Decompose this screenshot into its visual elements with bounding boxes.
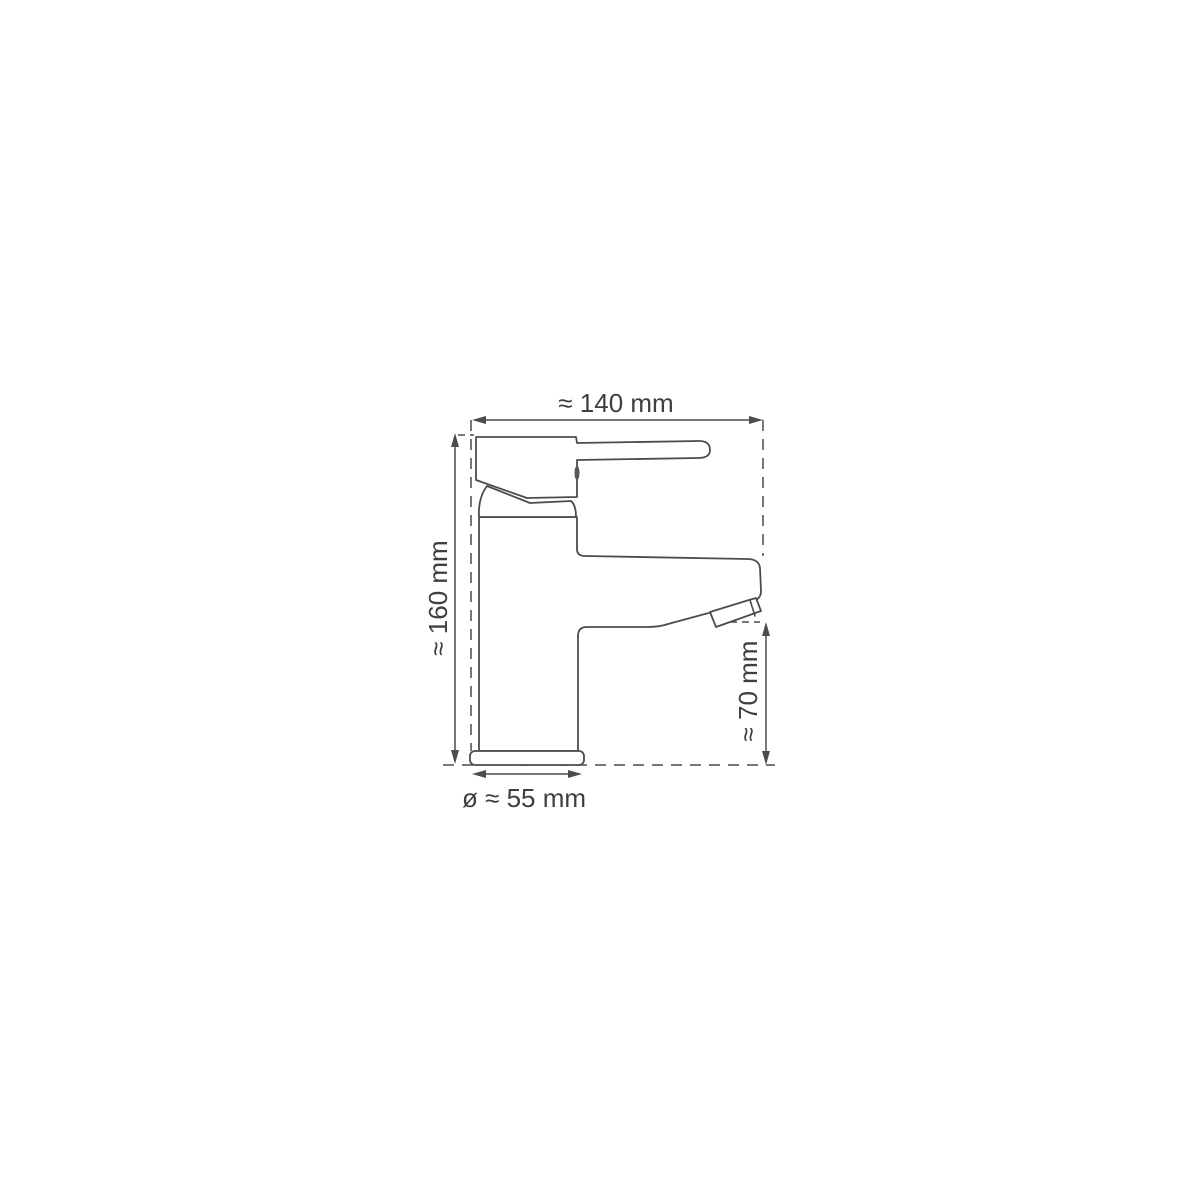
dim-spout-height-label: ≈ 70 mm — [733, 641, 763, 742]
faucet-body-and-spout — [479, 517, 761, 751]
dim-diameter-arrow-left — [472, 770, 486, 778]
dim-diameter-label: ø ≈ 55 mm — [462, 783, 586, 813]
faucet-outline — [470, 437, 761, 765]
dim-width-arrow-right — [749, 416, 763, 424]
faucet-handle-lever — [476, 437, 710, 498]
dimension-overall-height: ≈ 160 mm — [423, 433, 459, 764]
faucet-dimension-drawing: ≈ 140 mm ≈ 160 mm ≈ 70 mm ø ≈ 55 mm — [0, 0, 1200, 1200]
faucet-base-flange — [470, 751, 584, 765]
dim-height-arrow-bottom — [451, 750, 459, 764]
dimension-base-diameter: ø ≈ 55 mm — [462, 770, 586, 813]
dimension-overall-width: ≈ 140 mm — [472, 388, 763, 424]
dim-width-label: ≈ 140 mm — [558, 388, 673, 418]
dim-spout-height-arrow-bottom — [762, 751, 770, 765]
dim-diameter-arrow-right — [568, 770, 582, 778]
dim-height-label: ≈ 160 mm — [423, 540, 453, 655]
dim-height-arrow-top — [451, 433, 459, 447]
handle-pivot-detail — [575, 466, 580, 480]
dim-spout-height-arrow-top — [762, 622, 770, 636]
dim-width-arrow-left — [472, 416, 486, 424]
dimension-spout-height: ≈ 70 mm — [733, 622, 770, 765]
product-dimension-page: ≈ 140 mm ≈ 160 mm ≈ 70 mm ø ≈ 55 mm — [0, 0, 1200, 1200]
